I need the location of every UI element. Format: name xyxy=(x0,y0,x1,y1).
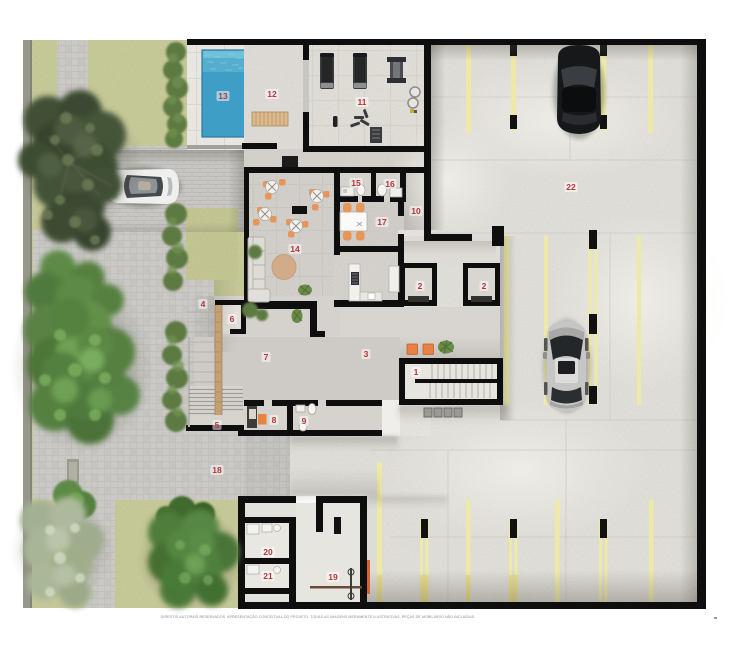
svg-text:9: 9 xyxy=(302,416,307,426)
svg-text:13: 13 xyxy=(218,91,228,101)
svg-text:16: 16 xyxy=(385,179,395,189)
svg-text:21: 21 xyxy=(263,571,273,581)
svg-text:18: 18 xyxy=(212,465,222,475)
svg-text:15: 15 xyxy=(351,178,361,188)
svg-text:20: 20 xyxy=(263,547,273,557)
svg-text:5: 5 xyxy=(215,420,220,430)
svg-text:22: 22 xyxy=(566,182,576,192)
svg-text:2: 2 xyxy=(418,281,423,291)
svg-text:4: 4 xyxy=(201,299,206,309)
svg-text:11: 11 xyxy=(358,97,367,107)
svg-text:14: 14 xyxy=(290,244,300,254)
svg-text:8: 8 xyxy=(272,415,277,425)
svg-text:7: 7 xyxy=(264,352,269,362)
svg-text:19: 19 xyxy=(328,572,338,582)
svg-text:3: 3 xyxy=(364,349,369,359)
svg-text:12: 12 xyxy=(267,89,277,99)
svg-text:1: 1 xyxy=(414,367,419,377)
svg-text:17: 17 xyxy=(377,217,387,227)
svg-text:10: 10 xyxy=(411,206,421,216)
svg-text:2: 2 xyxy=(482,281,487,291)
svg-text:6: 6 xyxy=(230,314,235,324)
svg-text:DIREITOS AUTORAIS RESERVADOS.: DIREITOS AUTORAIS RESERVADOS. APRESENTAÇ… xyxy=(161,614,476,619)
